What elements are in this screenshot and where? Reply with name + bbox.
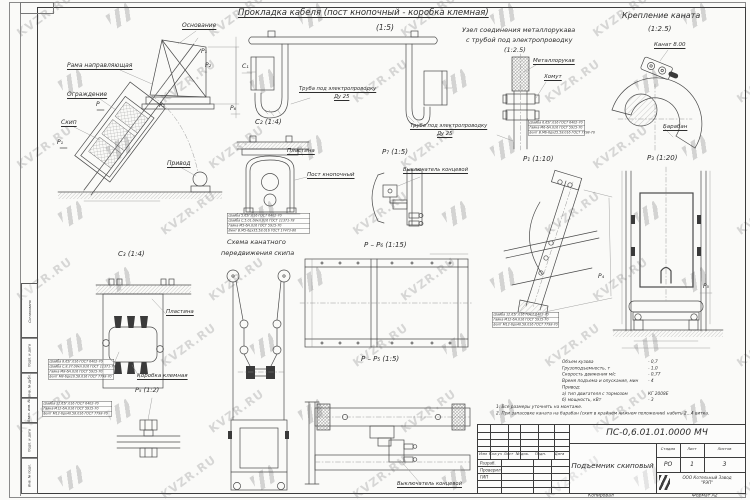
parts-line: Шайба 6.65Г.016 ГОСТ 6402-70: [529, 121, 585, 126]
sig-row-label: ГИП: [480, 474, 530, 481]
parts-list-box: Шайба 8.65Г.016 ГОСТ 6402-70 Шайба С.8.3…: [48, 359, 114, 380]
sheet-label: Лист: [680, 447, 704, 451]
label-conduit-2: Труба под электропроводку: [410, 124, 487, 129]
header-cell: № док.: [514, 452, 531, 456]
label-fence: Ограждение: [67, 92, 107, 98]
section-label-pp6: Р – Р₆ (1:15): [364, 242, 407, 249]
parts-line: Шайба 12.65Г.016 ГОСТ 6402-70: [493, 313, 559, 318]
header-cell: Кол.уч: [488, 452, 503, 456]
label-plate-2: Пластина: [166, 310, 194, 316]
label-drum: Барабан: [663, 125, 687, 131]
parts-line: Болт М12-6gх40.58.016 ГОСТ 7798-70: [43, 411, 112, 416]
spec-key: б) мощность, кВт: [562, 397, 648, 403]
note-line: 2. При запасовке каната на барабан (скип…: [496, 410, 746, 416]
header-cell: Подп.: [531, 452, 550, 456]
doc-number: ПС-0,6.01.01.0000 МЧ: [569, 428, 745, 438]
title-block: ПС-0,6.01.01.0000 МЧ Подъемник скиповый …: [477, 424, 746, 494]
label-metal-hose: Металлорукав: [533, 59, 575, 65]
parts-line: Винт В.М5-6gх35.58.016 ГОСТ 17473-80: [228, 228, 310, 233]
parts-line: Гайка М6-6Н.016 ГОСТ 5915-70: [529, 125, 585, 130]
label-plate-1: Пластина: [287, 149, 315, 155]
change-table-header: Изм Кол.уч Лист № док. Подп. Дата: [478, 452, 569, 456]
spec-value: - 3: [648, 397, 692, 403]
label-conduit-1: Труба под электропроводку: [299, 87, 376, 92]
title-hose-line1: Узел соединения металлорукава: [462, 27, 575, 34]
title-cable-routing: Прокладка кабеля (пост кнопочный - короб…: [238, 9, 489, 18]
label-clamp: Хомут: [544, 75, 562, 81]
company-line: "РЭП": [672, 480, 742, 485]
doc-title: Подъемник скиповый: [569, 461, 656, 470]
view-label-p5: Р₅ (1:2): [135, 387, 159, 394]
company-logo: [659, 475, 670, 490]
label-skip: Скип: [61, 120, 77, 126]
parts-line: Шайба С.8.37.08кп.016 ГОСТ 11371-78: [49, 364, 114, 369]
signature-rows: Разраб. Проверил ГИП: [480, 460, 530, 481]
view-label-p7: Р₇ (1:5): [382, 149, 408, 156]
title-hose-scale: (1:2.5): [504, 47, 526, 54]
title-rope-scale: (1:2.5): [648, 26, 671, 33]
label-base: Основание: [182, 23, 216, 29]
label-button-post: Пост кнопочный: [307, 173, 354, 179]
sig-row-label: Проверил: [480, 467, 530, 474]
header-cell: Лист: [503, 452, 514, 456]
mark-c1: С₁: [242, 64, 249, 70]
mark-p4: Р₄: [598, 274, 604, 280]
label-conduit-2-dn: Ду 25: [437, 132, 452, 137]
mark-p: Р: [96, 102, 100, 108]
parts-line: Болт М8-6gх10.58.016 ГОСТ 7798-70: [49, 374, 114, 379]
company-name: ООО Котельный Завод "РЭП": [672, 475, 742, 485]
title-scheme-line1: Схема канатного: [227, 239, 286, 246]
mark-p1-b: Р₁: [159, 103, 165, 109]
drawing-sheet: KVZR.RUKVZR.RUKVZR.RUKVZR.RUKVZR.RUKVZR.…: [0, 0, 750, 500]
label-limit-switch-1: Выключатель концевой: [403, 168, 468, 173]
view-label-p1: Р₁ (1:10): [523, 156, 553, 163]
title-hose-line2: с трубой под электропроводку: [466, 37, 572, 44]
parts-list-p1: Шайба 12.65Г.016 ГОСТ 6402-70 Гайка М12-…: [492, 312, 559, 328]
notes: 1. Все размеры уточнять на монтаже. 2. П…: [496, 404, 746, 417]
parts-line: Болт В.М6-6gх25.58.016 ГОСТ 7798-70: [529, 130, 585, 135]
parts-list-p5: Шайба 12.65Г.016 ГОСТ 6402-70 Гайка М12-…: [42, 401, 112, 417]
stage-header: Стадия Лист Листов: [656, 447, 745, 451]
tech-specs: Объем кузова- 0,7 Грузоподъемность, т- 1…: [562, 359, 692, 404]
title-cable-scale: (1:5): [376, 24, 394, 32]
sig-row-label: Разраб.: [480, 460, 530, 467]
stage-value: РО: [656, 461, 680, 468]
label-drive: Привод: [167, 161, 191, 167]
header-cell: Дата: [550, 452, 569, 456]
parts-list-post: Шайба 5.65Г.016 ГОСТ 6402-70 Шайба С.5.0…: [227, 213, 310, 234]
label-rope: Канат 8.00: [654, 43, 685, 49]
stage-label: Стадия: [656, 447, 680, 451]
title-rope-fastening: Крепление каната: [622, 12, 700, 20]
title-scheme-line2: передвижения скипа: [221, 250, 294, 257]
sheets-label: Листов: [704, 447, 745, 451]
parts-line: Болт М12-6gх40.58.016 ГОСТ 7798-70: [493, 322, 559, 327]
view-label-c3: С₃ (1:4): [118, 251, 145, 258]
mark-p2: Р₂: [205, 63, 211, 69]
header-cell: Изм: [478, 452, 488, 456]
section-label-pp5: Р – Р₅ (1:5): [361, 356, 399, 363]
label-terminal-box: Коробка клемная: [137, 374, 188, 380]
sheets-value: 3: [704, 461, 745, 468]
mark-p5: Р₅: [703, 284, 709, 290]
label-conduit-1-dn: Ду 25: [334, 95, 349, 100]
view-label-c2: С₂ (1:4): [255, 119, 282, 126]
sheet-value: 1: [680, 461, 704, 468]
mark-p1-a: Р₁: [201, 49, 207, 55]
label-guide-frame: Рама направляющая: [67, 63, 132, 69]
mark-p1-c: Р₁: [57, 140, 63, 146]
parts-list-hose: Шайба 6.65Г.016 ГОСТ 6402-70 Гайка М6-6Н…: [528, 120, 585, 136]
label-limit-switch-2: Выключатель концевой: [397, 482, 462, 487]
view-label-p3: Р₃ (1:20): [647, 155, 677, 162]
mark-p6: Р₆: [230, 106, 236, 112]
